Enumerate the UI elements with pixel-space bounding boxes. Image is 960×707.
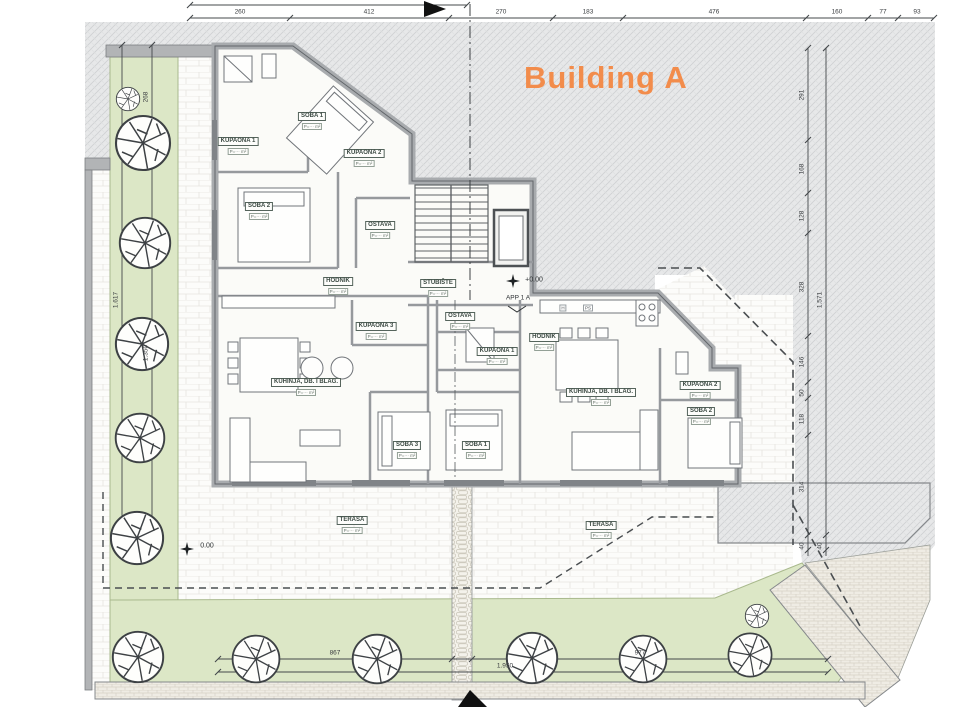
terrace-label-left: TERASA P=··· m² [337, 508, 368, 534]
dim-bottom-1: 977 [635, 650, 646, 657]
room-label-kupaona1-left: KUPAONA 1 P=··· m² [218, 129, 259, 155]
dim-right-1: 168 [799, 164, 806, 175]
room-label-kupaona2-left: KUPAONA 2 P=··· m² [344, 141, 385, 167]
dim-right-end-b: 40 [817, 542, 824, 549]
room-label-soba2-left: SOBA 2 P=··· m² [245, 194, 273, 220]
terrace-level-marker: 0.00 [200, 543, 214, 550]
terrace-label-right: TERASA P=··· m² [586, 513, 617, 539]
dim-right-6: 118 [799, 414, 806, 424]
dim-top-3: 183 [583, 9, 594, 16]
dim-right-total: 1.571 [817, 292, 824, 308]
room-label-kuhinja-left: KUHINJA, DB. I BLAG. P=··· m² [271, 370, 341, 396]
dim-right-4: 146 [799, 357, 806, 368]
room-label-soba1-left: SOBA 1 P=··· m² [298, 104, 326, 130]
stone-footpath [452, 484, 472, 700]
room-label-kupaona1-right: KUPAONA 1 P=··· m² [477, 339, 518, 365]
dim-left-0: 268 [143, 92, 150, 103]
dim-top-1: 412 [364, 9, 375, 16]
dim-top-2: 270 [496, 9, 507, 16]
room-label-stubiste: STUBIŠTE P=··· m² [420, 271, 456, 297]
closet-label-ps: PS [583, 305, 593, 312]
dim-right-5: 50 [799, 389, 806, 396]
dim-right-end-a: 40 [799, 542, 806, 549]
room-label-kuhinja-right: KUHINJA, DB. I BLAG. P=··· m² [566, 380, 636, 406]
elevator [494, 210, 528, 266]
dim-left-total: 1.617 [113, 292, 120, 308]
dim-right-3: 328 [799, 282, 806, 293]
dim-top-7: 93 [913, 9, 920, 16]
dim-left-1: 1.350 [143, 345, 150, 361]
floor-plan-canvas: Building A KUPAONA 1 P=··· m² SOBA 1 P=·… [0, 0, 960, 707]
dim-bottom-0: 867 [330, 650, 341, 657]
dim-top-0: 260 [235, 9, 246, 16]
room-label-soba2-right: SOBA 2 P=··· m² [687, 399, 715, 425]
room-label-hodnik-left: HODNIK P=··· m² [323, 269, 353, 295]
room-label-kupaona3-left: KUPAONA 3 P=··· m² [356, 314, 397, 340]
room-label-hodnik-right: HODNIK P=··· m² [529, 325, 559, 351]
apartment-ref-label: APP 1 A [506, 295, 530, 302]
room-label-ostava-left: OSTAVA P=··· m² [365, 213, 395, 239]
room-label-soba1-right: SOBA 1 P=··· m² [462, 433, 490, 459]
entry-level-marker: +0.00 [525, 277, 543, 284]
dim-top-4: 476 [709, 9, 720, 16]
dim-right-7: 314 [799, 482, 806, 493]
dim-right-0: 291 [799, 90, 806, 101]
building-title: Building A [524, 60, 688, 96]
room-label-soba3-left: SOBA 3 P=··· m² [393, 433, 421, 459]
room-label-kupaona2-right: KUPAONA 2 P=··· m² [680, 373, 721, 399]
sidewalk [95, 682, 865, 699]
dim-right-2: 128 [799, 211, 806, 222]
dim-top-6: 77 [879, 9, 886, 16]
room-label-ostava-right: OSTAVA P=··· m² [445, 304, 475, 330]
dim-top-5: 160 [832, 9, 843, 16]
closet-label-h: H [559, 305, 566, 312]
dim-bottom-total: 1.950 [497, 663, 513, 670]
patio-block [718, 483, 930, 543]
